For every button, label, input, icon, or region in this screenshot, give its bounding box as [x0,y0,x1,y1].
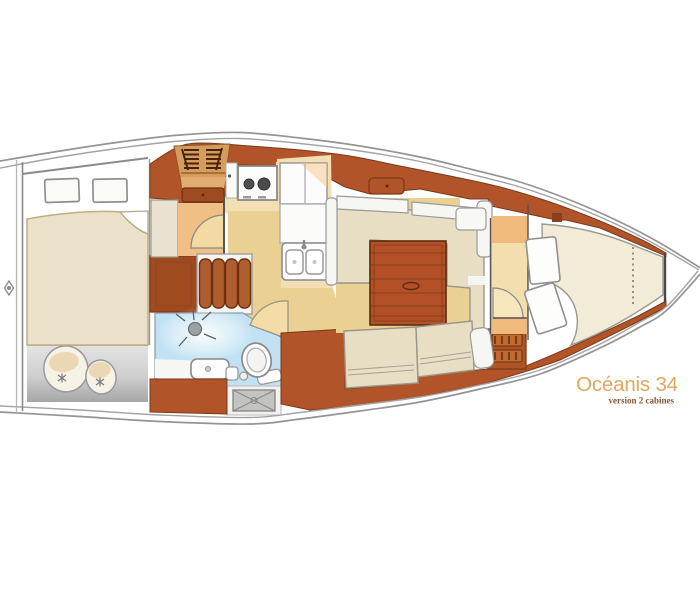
svg-text:Océanis 34: Océanis 34 [576,373,678,396]
svg-text:version 2 cabines: version 2 cabines [608,396,674,406]
